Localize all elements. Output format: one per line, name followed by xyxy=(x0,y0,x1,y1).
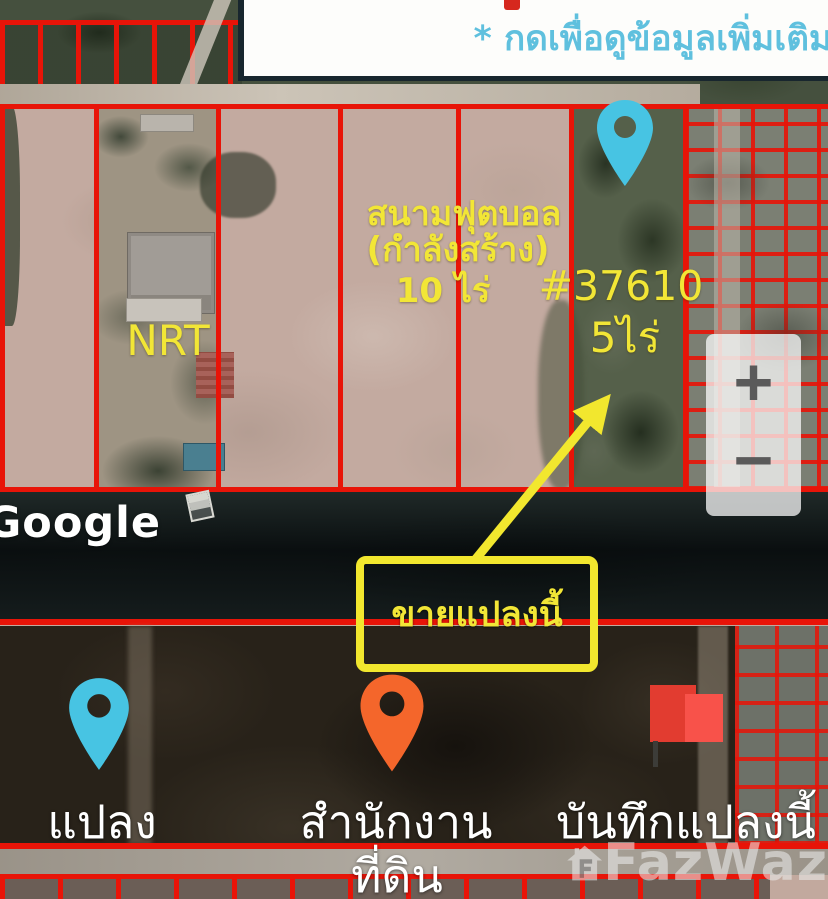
legend-saved-flag xyxy=(648,683,728,769)
fazwaz-house-icon xyxy=(566,832,603,894)
sale-callout-box: ขายแปลงนี้ xyxy=(356,556,598,672)
map-canvas[interactable]: * กดเพื่อดูข้อมูลเพิ่มเติม สนามฟุตบอล (ก… xyxy=(0,0,828,899)
orange-pin-icon xyxy=(356,672,428,774)
flag-icon xyxy=(685,694,723,742)
sale-callout-text: ขายแปลงนี้ xyxy=(391,587,562,642)
legend-land-office-pin xyxy=(356,672,428,774)
legend-plot-pin xyxy=(64,676,134,772)
flag-pole xyxy=(653,741,658,767)
brand-watermark: FazWaz xyxy=(566,832,828,894)
blue-pin-icon xyxy=(64,676,134,772)
arrow-line xyxy=(475,412,596,560)
fazwaz-wordmark: FazWaz xyxy=(603,833,828,893)
legend-plot-label: แปลง xyxy=(47,786,157,859)
legend-land-office-label-2: ที่ดิน xyxy=(351,840,443,899)
